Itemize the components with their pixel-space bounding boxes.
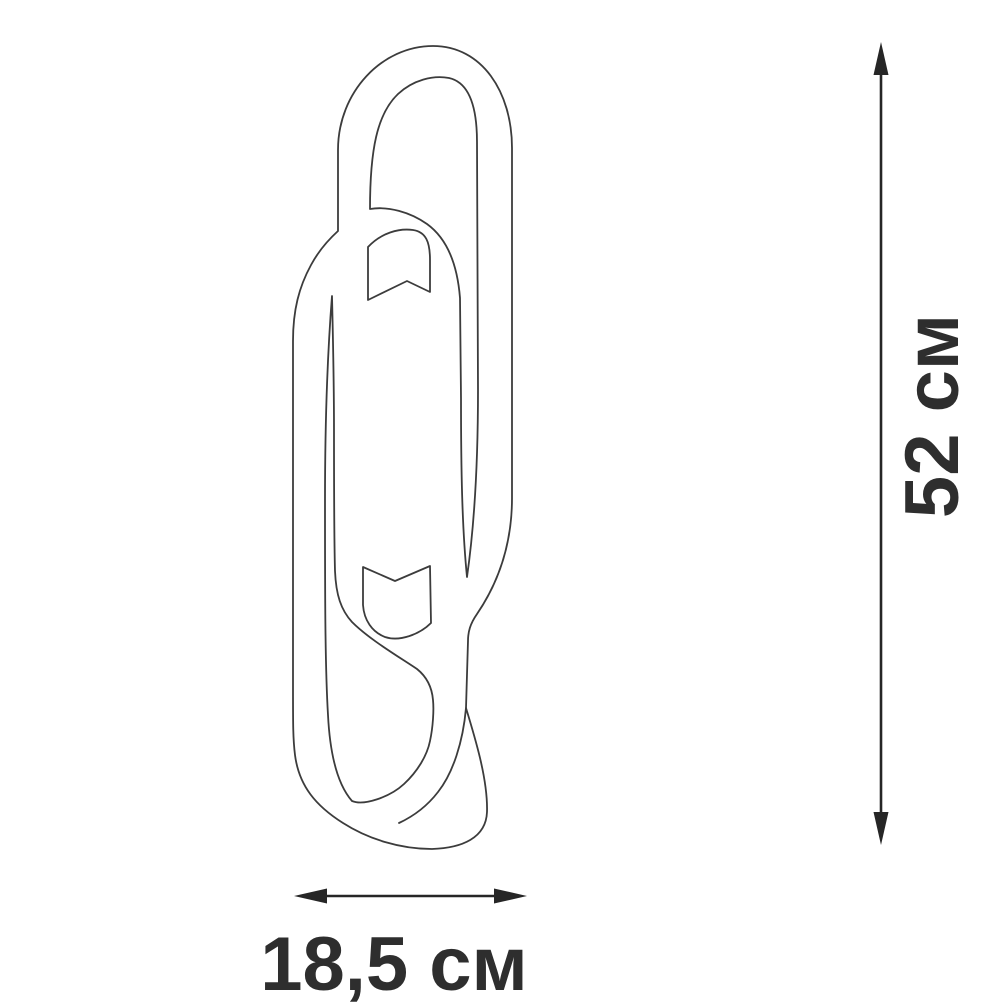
diagram-canvas: 52 см 18,5 см (0, 0, 1000, 1002)
width-arrowhead-left-icon (294, 889, 327, 904)
height-dimension-label: 52 см (890, 314, 975, 518)
width-arrowhead-right-icon (494, 889, 527, 904)
height-arrowhead-top-icon (874, 42, 889, 75)
height-dimension: 52 см (874, 42, 976, 845)
width-dimension-label: 18,5 см (260, 922, 528, 1002)
width-dimension: 18,5 см (260, 889, 528, 1002)
height-arrowhead-bottom-icon (874, 812, 889, 845)
product-dimension-diagram: 52 см 18,5 см (0, 0, 1000, 1002)
product-line-drawing (293, 46, 512, 849)
